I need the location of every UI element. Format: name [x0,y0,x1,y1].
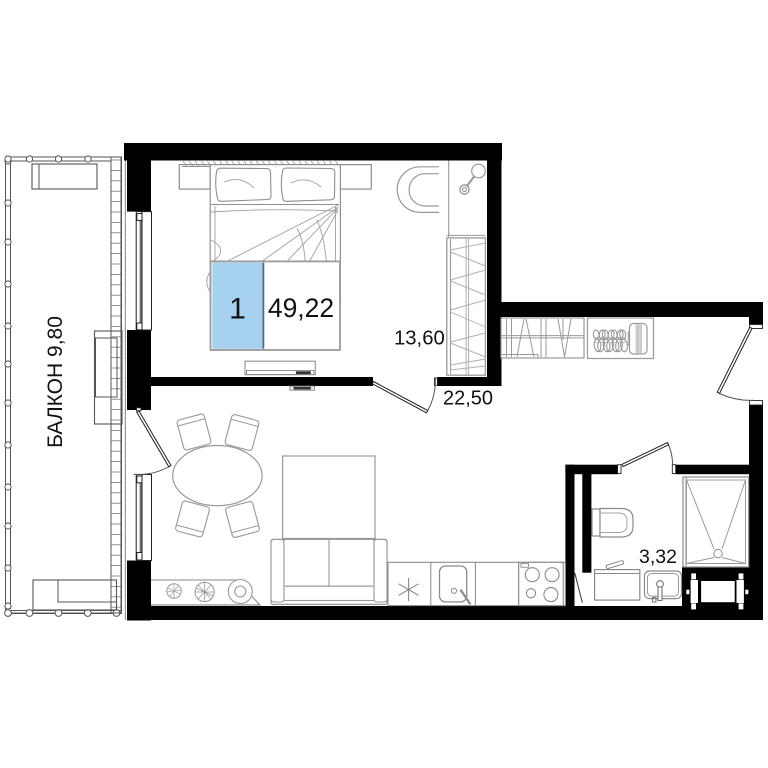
svg-text:1: 1 [229,293,246,326]
svg-text:3,32: 3,32 [639,546,677,568]
svg-text:22,50: 22,50 [443,388,493,410]
svg-text:БАЛКОН 9,80: БАЛКОН 9,80 [44,316,67,448]
svg-text:49,22: 49,22 [268,293,334,323]
svg-text:13,60: 13,60 [394,328,445,350]
